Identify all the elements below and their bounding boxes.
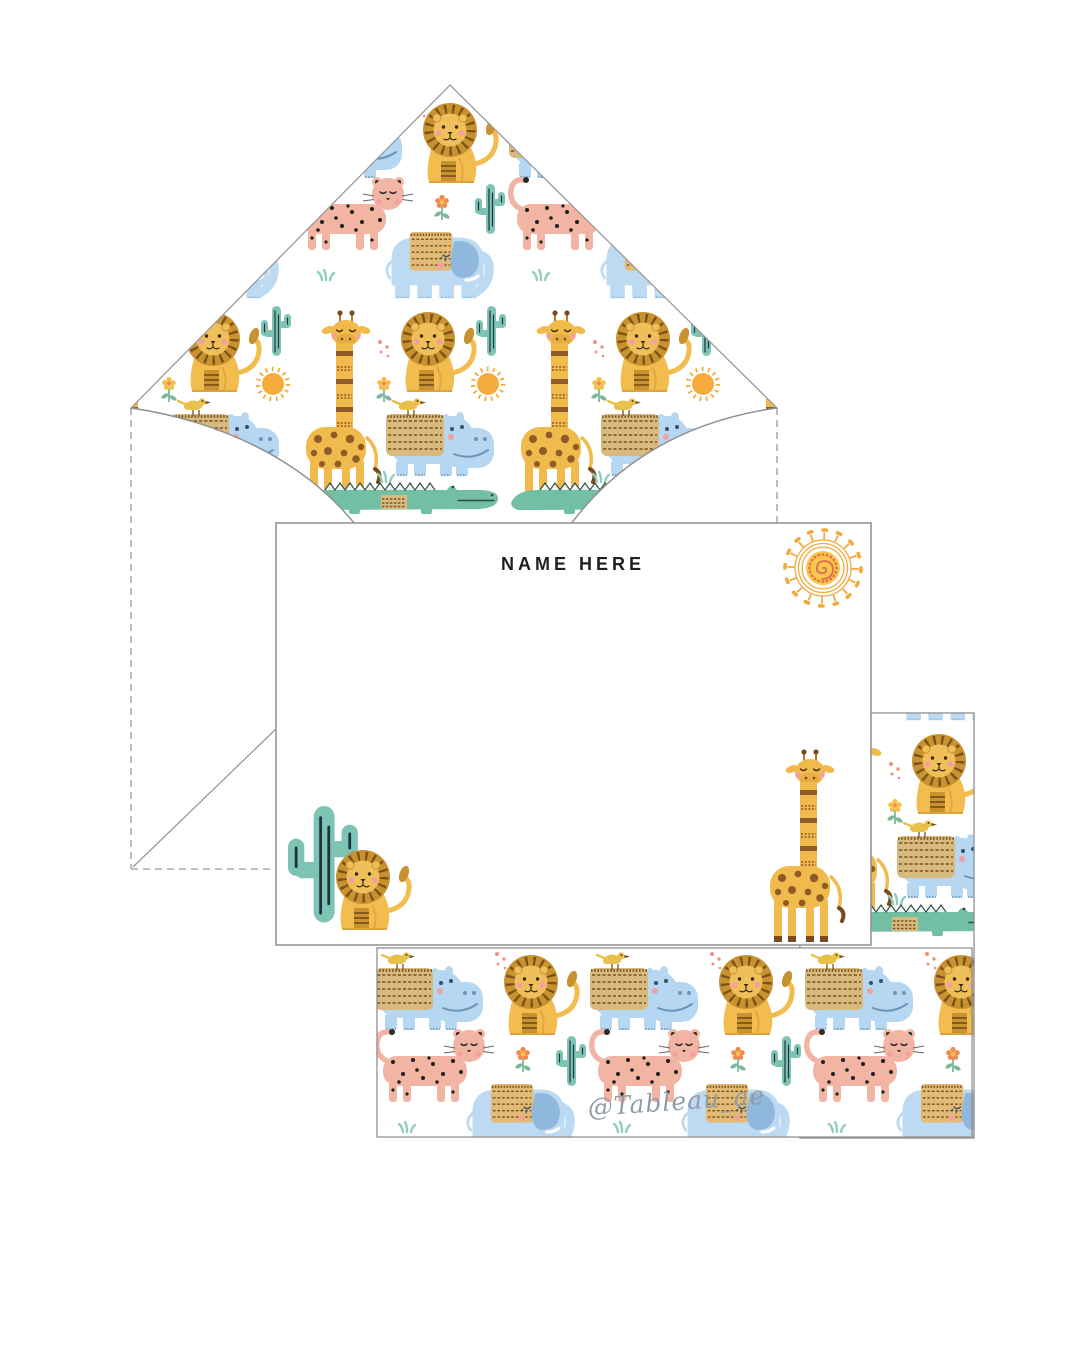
mockup-canvas: NAME HERE @Tableau_ae — [0, 0, 1080, 1350]
pattern-card-bottom: @Tableau_ae — [377, 948, 972, 1137]
notecard-front: NAME HERE — [276, 523, 871, 945]
name-placeholder-text: NAME HERE — [501, 554, 645, 574]
